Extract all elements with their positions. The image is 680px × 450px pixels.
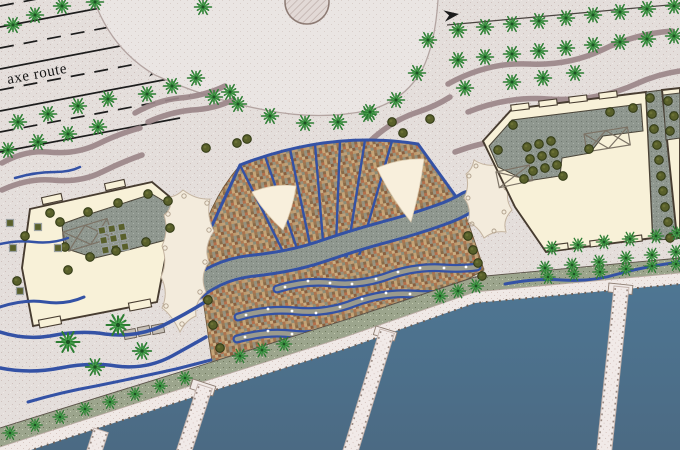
olive-tree-icon xyxy=(494,146,503,155)
bush-icon xyxy=(202,144,211,153)
bush-icon xyxy=(464,232,473,241)
olive-tree-icon xyxy=(142,238,151,247)
olive-tree-icon xyxy=(659,187,668,196)
planter-icon xyxy=(119,233,127,241)
bush-icon xyxy=(243,135,252,144)
site-plan: axe route xyxy=(0,0,680,450)
olive-tree-icon xyxy=(666,127,675,136)
olive-tree-icon xyxy=(166,224,175,233)
planter-icon xyxy=(10,245,17,252)
olive-tree-icon xyxy=(661,203,670,212)
planter-icon xyxy=(108,225,116,233)
olive-tree-icon xyxy=(538,152,547,161)
bush-icon xyxy=(478,272,487,281)
olive-tree-icon xyxy=(648,110,657,119)
olive-tree-icon xyxy=(550,149,559,158)
olive-tree-icon xyxy=(114,199,123,208)
olive-tree-icon xyxy=(653,141,662,150)
olive-tree-icon xyxy=(670,112,679,121)
planter-icon xyxy=(121,243,129,251)
olive-tree-icon xyxy=(46,209,55,218)
planter-icon xyxy=(98,226,106,234)
olive-tree-icon xyxy=(664,97,673,106)
planter-icon xyxy=(100,236,108,244)
olive-tree-icon xyxy=(541,164,550,173)
olive-tree-icon xyxy=(56,218,65,227)
planter-icon xyxy=(101,246,109,254)
olive-tree-icon xyxy=(520,175,529,184)
planter-icon xyxy=(17,288,24,295)
olive-tree-icon xyxy=(86,253,95,262)
olive-tree-icon xyxy=(529,167,538,176)
planter-icon xyxy=(118,223,126,231)
olive-tree-icon xyxy=(606,108,615,117)
olive-tree-icon xyxy=(21,232,30,241)
olive-tree-icon xyxy=(629,104,638,113)
olive-tree-icon xyxy=(164,197,173,206)
planter-icon xyxy=(109,235,117,243)
planter-icon xyxy=(55,245,62,252)
olive-tree-icon xyxy=(523,143,532,152)
site-plan-svg: axe route xyxy=(0,0,680,450)
bush-icon xyxy=(426,115,435,124)
planter-icon xyxy=(7,220,14,227)
olive-tree-icon xyxy=(84,208,93,217)
olive-tree-icon xyxy=(144,190,153,199)
olive-tree-icon xyxy=(13,277,22,286)
bush-icon xyxy=(469,246,478,255)
bush-icon xyxy=(216,344,225,353)
bush-icon xyxy=(474,259,483,268)
olive-tree-icon xyxy=(535,140,544,149)
olive-tree-icon xyxy=(646,94,655,103)
olive-tree-icon xyxy=(650,125,659,134)
bush-icon xyxy=(209,321,218,330)
olive-tree-icon xyxy=(553,161,562,170)
bush-icon xyxy=(233,139,242,148)
bush-icon xyxy=(399,129,408,138)
olive-tree-icon xyxy=(559,172,568,181)
olive-tree-icon xyxy=(509,121,518,130)
olive-tree-icon xyxy=(112,247,121,256)
olive-tree-icon xyxy=(655,156,664,165)
bush-icon xyxy=(204,296,213,305)
olive-tree-icon xyxy=(585,145,594,154)
olive-tree-icon xyxy=(526,155,535,164)
olive-tree-icon xyxy=(657,172,666,181)
olive-tree-icon xyxy=(664,218,673,227)
olive-tree-icon xyxy=(64,266,73,275)
bush-icon xyxy=(388,118,397,127)
planter-icon xyxy=(35,224,42,231)
olive-tree-icon xyxy=(547,137,556,146)
